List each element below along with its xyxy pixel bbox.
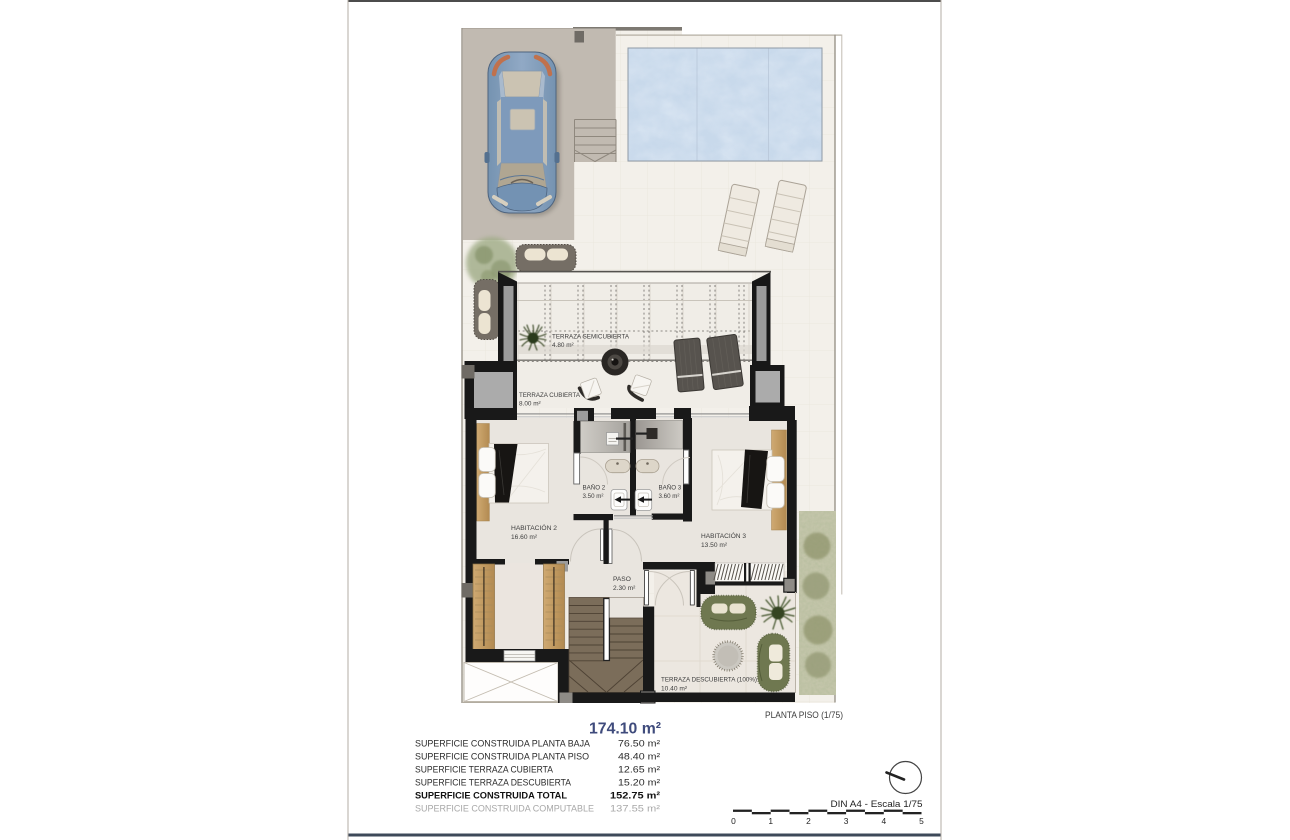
svg-text:SUPERFICIE CONSTRUIDA TOTAL: SUPERFICIE CONSTRUIDA TOTAL [415,790,567,801]
svg-text:SUPERFICIE TERRAZA DESCUBIERTA: SUPERFICIE TERRAZA DESCUBIERTA [415,777,572,788]
svg-text:3.50 m²: 3.50 m² [583,493,604,500]
svg-text:5: 5 [919,816,924,826]
svg-text:SUPERFICIE TERRAZA CUBIERTA: SUPERFICIE TERRAZA CUBIERTA [415,764,554,775]
svg-text:174.10 m²: 174.10 m² [589,721,661,738]
svg-text:PLANTA PISO (1/75): PLANTA PISO (1/75) [765,710,843,720]
svg-text:76.50 m²: 76.50 m² [618,738,660,749]
svg-text:1: 1 [768,816,773,826]
svg-text:DIN A4 - Escala 1/75: DIN A4 - Escala 1/75 [831,798,923,809]
svg-text:2.30 m²: 2.30 m² [613,585,636,592]
svg-text:3: 3 [844,816,849,826]
svg-text:12.65 m²: 12.65 m² [618,764,660,775]
svg-text:TERRAZA CUBIERTA: TERRAZA CUBIERTA [519,392,581,399]
svg-text:16.60 m²: 16.60 m² [511,534,538,541]
svg-text:TERRAZA DESCUBIERTA (100%): TERRAZA DESCUBIERTA (100%) [661,677,757,684]
svg-text:PASO: PASO [613,576,631,583]
svg-text:SUPERFICIE CONSTRUIDA PLANTA P: SUPERFICIE CONSTRUIDA PLANTA PISO [415,751,589,762]
svg-text:137.55 m²: 137.55 m² [610,803,660,814]
svg-text:152.75 m²: 152.75 m² [610,790,660,801]
svg-text:4: 4 [881,816,886,826]
svg-text:48.40 m²: 48.40 m² [618,751,660,762]
svg-text:BAÑO 3: BAÑO 3 [659,485,682,492]
svg-text:HABITACIÓN 3: HABITACIÓN 3 [701,531,746,540]
svg-text:2: 2 [806,816,811,826]
svg-text:8.00 m²: 8.00 m² [519,401,541,408]
svg-text:SUPERFICIE CONSTRUIDA COMPUTAB: SUPERFICIE CONSTRUIDA COMPUTABLE [415,803,594,814]
svg-text:13.50 m²: 13.50 m² [701,542,728,549]
svg-text:HABITACIÓN 2: HABITACIÓN 2 [511,523,557,532]
svg-text:TERRAZA SEMICUBIERTA: TERRAZA SEMICUBIERTA [552,334,630,341]
svg-text:15.20 m²: 15.20 m² [618,777,660,788]
svg-text:SUPERFICIE CONSTRUIDA PLANTA B: SUPERFICIE CONSTRUIDA PLANTA BAJA [415,738,591,749]
svg-text:0: 0 [731,816,736,826]
svg-text:10.40 m²: 10.40 m² [661,686,688,693]
svg-text:4.80 m²: 4.80 m² [552,342,574,349]
svg-text:BAÑO 2: BAÑO 2 [583,485,606,492]
svg-text:3.60 m²: 3.60 m² [659,493,680,500]
